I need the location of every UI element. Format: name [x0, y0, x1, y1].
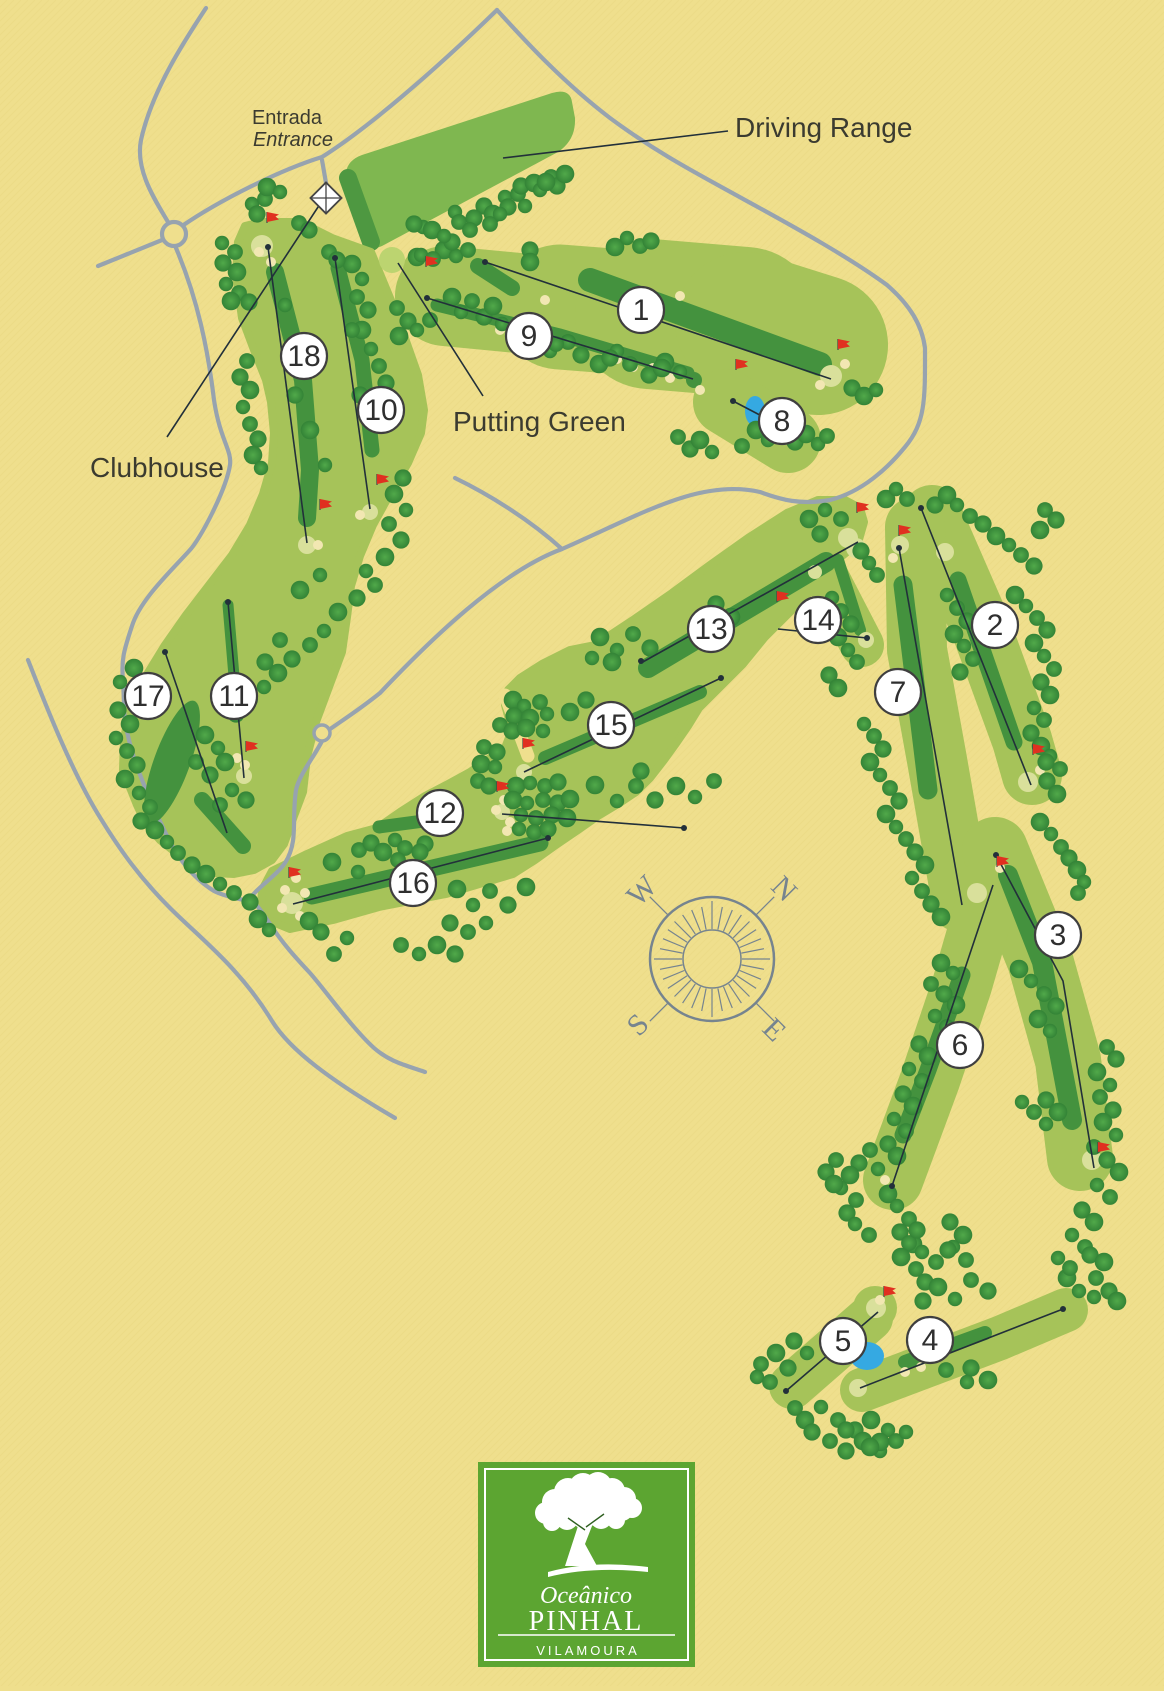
- svg-text:11: 11: [218, 680, 249, 713]
- svg-text:8: 8: [774, 405, 791, 438]
- svg-text:3: 3: [1050, 919, 1067, 952]
- svg-text:15: 15: [594, 709, 627, 742]
- svg-text:7: 7: [890, 676, 907, 709]
- svg-text:VILAMOURA: VILAMOURA: [536, 1643, 640, 1658]
- svg-text:13: 13: [694, 613, 727, 646]
- svg-text:1: 1: [633, 294, 650, 327]
- svg-text:Entrada: Entrada: [252, 107, 323, 129]
- svg-text:6: 6: [952, 1029, 969, 1062]
- svg-text:Driving Range: Driving Range: [735, 112, 912, 143]
- svg-text:4: 4: [922, 1324, 939, 1357]
- svg-text:10: 10: [364, 394, 397, 427]
- svg-text:12: 12: [423, 797, 456, 830]
- svg-text:Clubhouse: Clubhouse: [90, 452, 224, 483]
- svg-text:2: 2: [987, 609, 1004, 642]
- svg-text:Entrance: Entrance: [253, 129, 333, 151]
- svg-text:18: 18: [287, 340, 320, 373]
- svg-text:Putting Green: Putting Green: [453, 406, 626, 437]
- svg-text:5: 5: [835, 1325, 852, 1358]
- svg-text:9: 9: [521, 320, 538, 353]
- svg-text:17: 17: [131, 680, 164, 713]
- svg-text:PINHAL: PINHAL: [529, 1606, 644, 1637]
- svg-text:16: 16: [396, 867, 429, 900]
- svg-text:14: 14: [801, 604, 834, 637]
